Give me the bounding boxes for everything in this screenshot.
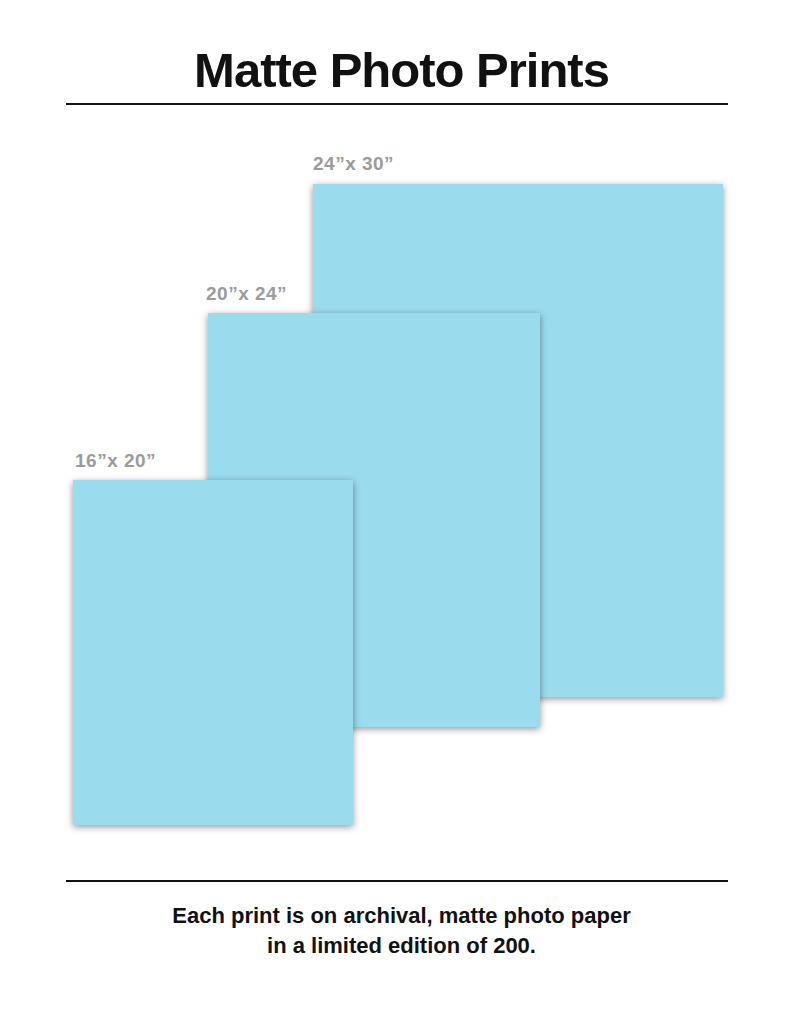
bottom-divider (66, 880, 728, 882)
footer-caption-line1: Each print is on archival, matte photo p… (0, 901, 803, 931)
footer-caption-line2: in a limited edition of 200. (0, 931, 803, 961)
print-label-24x30: 24”x 30” (313, 153, 394, 175)
print-label-16x20: 16”x 20” (75, 450, 156, 472)
footer-caption: Each print is on archival, matte photo p… (0, 901, 803, 961)
page-title: Matte Photo Prints (0, 42, 803, 98)
print-size-poster: Matte Photo Prints 24”x 30” 20”x 24” 16”… (0, 0, 803, 1026)
top-divider (66, 103, 728, 105)
print-label-20x24: 20”x 24” (206, 283, 287, 305)
print-swatch-16x20 (73, 480, 353, 825)
